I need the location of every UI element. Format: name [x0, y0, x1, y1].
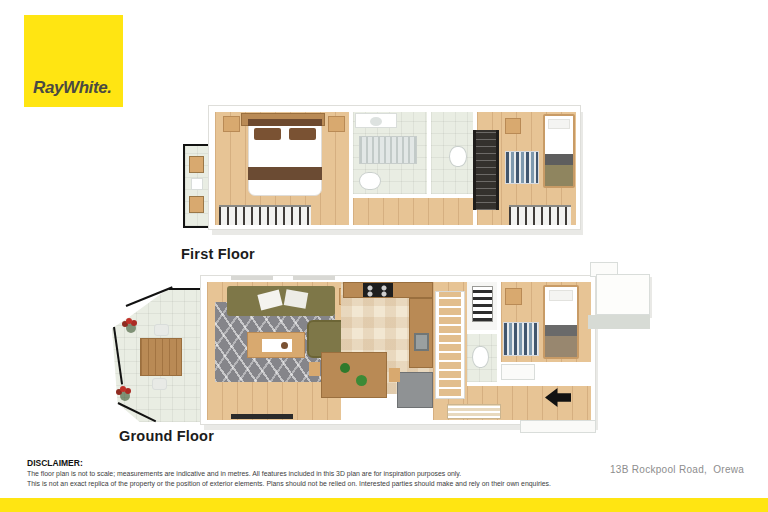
entry-step: [520, 420, 596, 433]
bed-runner: [545, 154, 573, 165]
dining-table: [321, 352, 387, 398]
porch-platform: [588, 315, 650, 329]
nightstand: [505, 288, 522, 305]
sofa-cushion: [284, 289, 308, 309]
bed-runner: [248, 167, 322, 180]
master-bed: [248, 119, 322, 196]
tv-unit: [231, 414, 293, 419]
balcony-table: [191, 178, 203, 190]
coffee-table: [247, 332, 305, 358]
pillow: [289, 128, 316, 140]
bed-blanket: [545, 336, 577, 357]
property-address: 13B Rockpool Road, Orewa: [610, 464, 744, 475]
sink: [414, 333, 429, 351]
balcony: [183, 144, 210, 228]
pillow: [548, 119, 570, 129]
disclaimer-line-1: The floor plan is not to scale; measurem…: [27, 469, 461, 478]
patio-fence: [169, 288, 203, 290]
first-floor-label: First Floor: [181, 246, 255, 262]
balcony-chair: [189, 196, 204, 213]
bowl: [281, 342, 288, 349]
disclaimer-line-2: This is not an exact replica of the prop…: [27, 479, 551, 488]
dining-chair: [309, 362, 320, 376]
wardrobe: [219, 205, 311, 225]
ground-floor-label: Ground Floor: [119, 428, 214, 444]
washing-machine: [472, 286, 493, 322]
pillow: [549, 290, 573, 301]
console-table: [501, 364, 535, 380]
flower-pot: [126, 318, 132, 324]
single-bed: [543, 114, 575, 188]
flower-pot: [120, 386, 126, 392]
toilet: [449, 146, 467, 167]
vanity: [355, 113, 397, 128]
sink: [370, 117, 382, 126]
raywhite-logo: RayWhite.: [24, 15, 123, 107]
dining-chair: [389, 368, 400, 382]
shower: [359, 136, 417, 164]
kitchen-island: [409, 298, 433, 368]
sofa: [227, 286, 335, 316]
stairs: [473, 130, 499, 210]
brand-footer-bar: [0, 498, 768, 512]
toilet: [359, 172, 381, 190]
first-floor-building: [208, 105, 581, 230]
sliding-door: [231, 276, 273, 280]
bench-seat: [447, 404, 501, 419]
plant: [340, 363, 350, 373]
pillow: [254, 128, 281, 140]
bed-blanket: [545, 165, 573, 186]
outdoor-table: [140, 338, 182, 376]
toilet: [472, 346, 489, 368]
stairs: [436, 292, 464, 398]
floorplan-page: RayWhite.: [0, 0, 768, 512]
ground-floor-plan: [112, 262, 668, 440]
balcony-chair: [189, 156, 204, 173]
disclaimer: DISCLAIMER: The floor plan is not to sca…: [27, 458, 597, 492]
hallway: [353, 198, 473, 225]
outdoor-chair: [154, 324, 169, 336]
bed-runner: [545, 325, 577, 336]
fridge: [397, 372, 433, 408]
disclaimer-title: DISCLAIMER:: [27, 458, 83, 468]
wardrobe: [509, 205, 571, 225]
porch-canopy: [596, 274, 650, 315]
raywhite-logo-text: RayWhite.: [33, 78, 112, 98]
headboard: [248, 119, 322, 126]
cooktop: [363, 283, 393, 297]
sofa-cushion: [257, 290, 282, 311]
nightstand: [505, 118, 521, 134]
nightstand: [223, 116, 240, 132]
striped-rug: [505, 151, 539, 184]
plant: [356, 375, 367, 386]
nightstand: [328, 116, 345, 132]
striped-rug: [503, 322, 539, 356]
first-floor-plan: [183, 98, 593, 244]
sliding-door: [293, 276, 335, 280]
single-bed: [543, 285, 579, 359]
outdoor-chair: [152, 378, 167, 390]
ground-floor-building: [200, 275, 596, 425]
